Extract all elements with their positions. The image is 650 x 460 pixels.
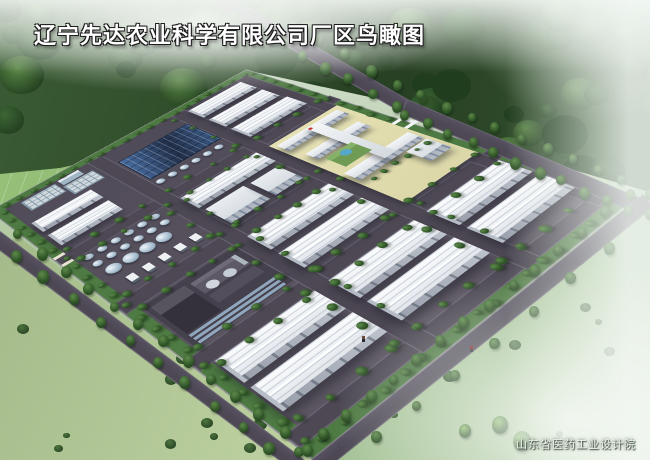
page-title: 辽宁先达农业科学有限公司厂区鸟瞰图 [34, 18, 425, 50]
mist-bottom-right [340, 265, 650, 460]
credit-caption: 山东省医药工业设计院 [516, 436, 636, 452]
aerial-rendering: 辽宁先达农业科学有限公司厂区鸟瞰图 山东省医药工业设计院 [0, 0, 650, 460]
